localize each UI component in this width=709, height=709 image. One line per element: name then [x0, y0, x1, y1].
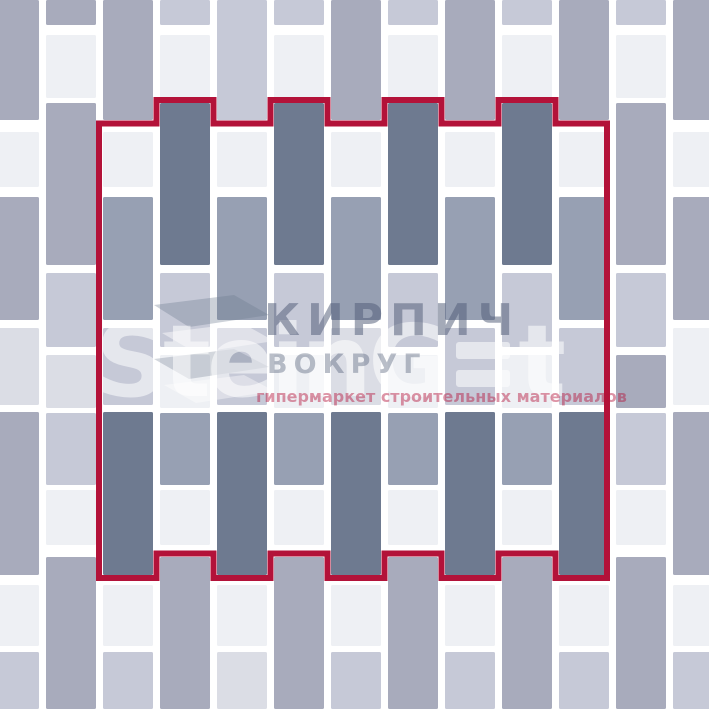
paving-tile	[103, 197, 153, 320]
paving-tile	[616, 413, 666, 485]
paving-tile	[673, 585, 709, 646]
paving-tile	[388, 0, 438, 25]
paving-tile	[0, 197, 39, 320]
paving-tile	[274, 273, 324, 347]
paving-tile	[445, 197, 495, 320]
paving-tile	[103, 0, 153, 120]
paving-tile	[160, 103, 210, 265]
paving-tile	[673, 412, 709, 575]
paving-tile	[160, 35, 210, 98]
paving-tile	[502, 35, 552, 98]
paving-tile	[160, 0, 210, 25]
paving-tile	[0, 412, 39, 575]
paving-tile	[274, 355, 324, 408]
paving-tile	[559, 0, 609, 120]
paving-tile	[502, 490, 552, 545]
paving-tile	[673, 0, 709, 120]
paving-tile	[445, 652, 495, 709]
paving-tile	[616, 0, 666, 25]
paving-tile	[559, 132, 609, 187]
paving-tile	[502, 557, 552, 709]
paving-tile	[673, 197, 709, 320]
paving-tile	[502, 355, 552, 408]
paving-tile	[616, 557, 666, 709]
paving-pattern-canvas: SteinGt КИРПИЧ ВОКРУГ гипермаркет строит…	[0, 0, 709, 709]
paving-tile	[103, 132, 153, 187]
paving-tile	[559, 412, 609, 575]
paving-tile	[217, 197, 267, 320]
paving-tile	[103, 412, 153, 575]
paving-tile	[274, 0, 324, 25]
paving-tile	[331, 328, 381, 405]
paving-tile	[103, 652, 153, 709]
paving-tile	[160, 490, 210, 545]
paving-tile	[673, 328, 709, 405]
paving-tile	[46, 0, 96, 25]
paving-tile	[46, 355, 96, 408]
paving-tile	[46, 273, 96, 347]
paving-tile	[502, 413, 552, 485]
paving-tile	[559, 585, 609, 646]
paving-tile	[274, 413, 324, 485]
paving-tile	[388, 355, 438, 408]
paving-tile	[331, 412, 381, 575]
paving-tile	[160, 273, 210, 347]
paving-tile	[217, 652, 267, 709]
paving-tile	[160, 557, 210, 709]
paving-tile	[217, 585, 267, 646]
paving-tile	[46, 557, 96, 709]
paving-tile	[445, 585, 495, 646]
paving-tile	[388, 273, 438, 347]
paving-tile	[616, 490, 666, 545]
paving-tile	[388, 557, 438, 709]
paving-tile	[274, 35, 324, 98]
paving-tile	[388, 490, 438, 545]
paving-tile	[616, 355, 666, 408]
paving-tile	[559, 652, 609, 709]
paving-tile	[388, 103, 438, 265]
paving-tile	[0, 652, 39, 709]
paving-tile	[217, 412, 267, 575]
paving-tile	[331, 197, 381, 320]
paving-tile	[673, 652, 709, 709]
paving-tile	[559, 197, 609, 320]
paving-tile	[0, 132, 39, 187]
paving-tile	[0, 585, 39, 646]
paving-tile	[0, 0, 39, 120]
paving-tile	[103, 328, 153, 405]
paving-tile	[331, 585, 381, 646]
paving-tile	[673, 132, 709, 187]
paving-tile	[274, 557, 324, 709]
paving-tile	[160, 413, 210, 485]
paving-tile	[103, 585, 153, 646]
paving-tile	[274, 103, 324, 265]
paving-tile	[388, 35, 438, 98]
paving-tile	[217, 132, 267, 187]
paving-tile	[616, 273, 666, 347]
paving-tile	[445, 412, 495, 575]
paving-tile	[445, 328, 495, 405]
paving-tile	[331, 0, 381, 120]
paving-tile	[46, 413, 96, 485]
paving-tile	[331, 652, 381, 709]
paving-tile	[331, 132, 381, 187]
paving-tile	[445, 0, 495, 120]
paving-tile	[46, 35, 96, 98]
paving-tile	[502, 103, 552, 265]
paving-tile	[274, 490, 324, 545]
paving-tile	[217, 328, 267, 405]
paving-tile	[616, 103, 666, 265]
paving-tile	[160, 355, 210, 408]
paving-tile	[616, 35, 666, 98]
paving-tile	[502, 0, 552, 25]
paving-tile	[388, 413, 438, 485]
paving-tile	[445, 132, 495, 187]
paving-tile	[217, 0, 267, 120]
paving-tile	[559, 328, 609, 405]
paving-tile	[46, 490, 96, 545]
paving-tile	[0, 328, 39, 405]
paving-tile	[502, 273, 552, 347]
paving-tile	[46, 103, 96, 265]
